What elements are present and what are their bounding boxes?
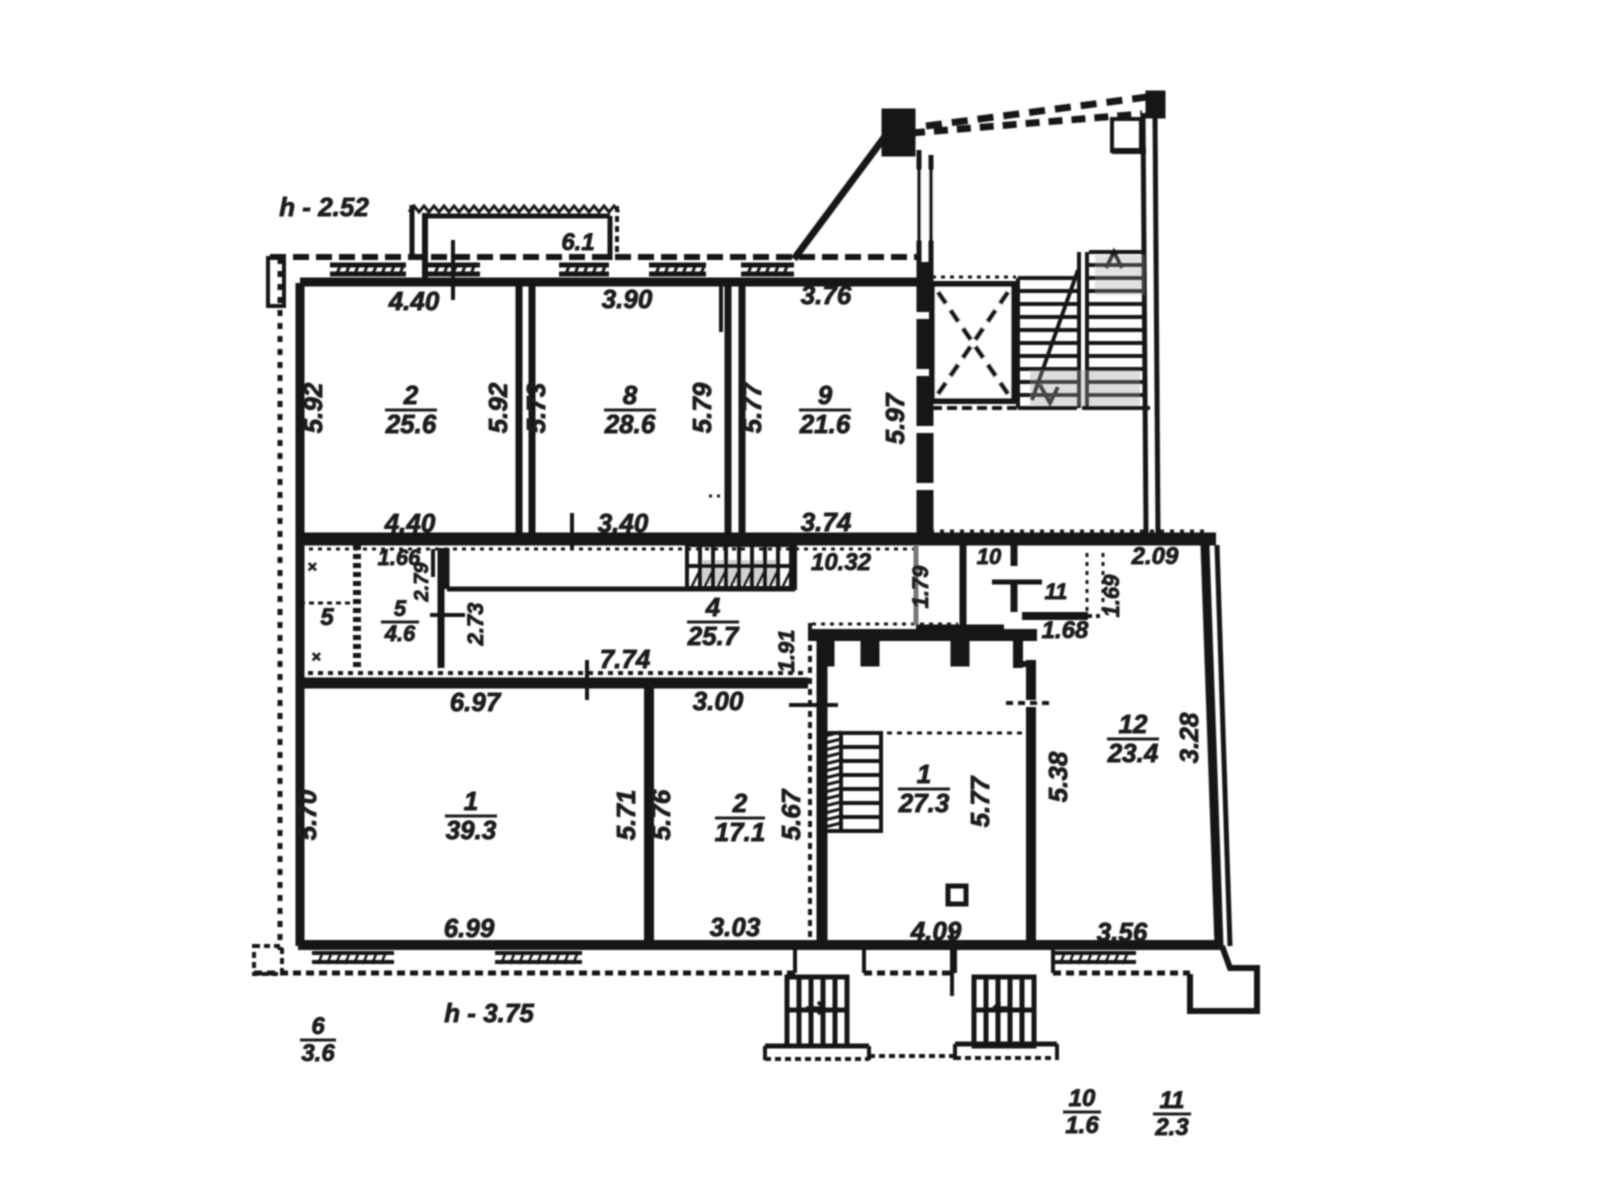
svg-text:5.97: 5.97	[880, 392, 910, 444]
svg-text:23.4: 23.4	[1107, 738, 1159, 768]
svg-text:5.73: 5.73	[521, 382, 551, 433]
svg-text:5.77: 5.77	[737, 381, 767, 433]
svg-text:6.97: 6.97	[450, 687, 502, 717]
svg-text:5.71: 5.71	[611, 790, 641, 841]
svg-text:1.79: 1.79	[908, 565, 933, 609]
svg-text:6.99: 6.99	[444, 913, 495, 943]
svg-text:h - 3.75: h - 3.75	[444, 998, 534, 1028]
svg-text:1.6: 1.6	[1065, 1112, 1099, 1139]
svg-text:11: 11	[1160, 1087, 1185, 1114]
svg-text:25.7: 25.7	[687, 621, 740, 651]
svg-text:5.92: 5.92	[483, 382, 513, 433]
svg-text:3.40: 3.40	[598, 508, 649, 538]
svg-text:1.69: 1.69	[1099, 574, 1124, 618]
svg-text:2: 2	[403, 380, 419, 410]
svg-text:27.3: 27.3	[898, 788, 950, 818]
svg-text:3.28: 3.28	[1174, 712, 1204, 763]
svg-text:2.09: 2.09	[1131, 543, 1179, 570]
svg-text:5.92: 5.92	[298, 382, 328, 433]
svg-text:12: 12	[1119, 709, 1148, 739]
svg-text:10: 10	[1069, 1085, 1096, 1112]
svg-text:3.03: 3.03	[710, 912, 761, 942]
svg-text:5.76: 5.76	[646, 789, 676, 840]
svg-text:8: 8	[623, 380, 638, 410]
svg-text:3.90: 3.90	[602, 284, 653, 314]
svg-text:5: 5	[320, 604, 334, 631]
svg-text:2: 2	[732, 788, 748, 818]
svg-text:39.3: 39.3	[446, 815, 497, 845]
svg-text:6.1: 6.1	[561, 229, 594, 256]
svg-text:5.77: 5.77	[965, 775, 995, 827]
svg-text:28.6: 28.6	[604, 409, 656, 439]
svg-text:3.6: 3.6	[301, 1040, 335, 1067]
svg-text:10.32: 10.32	[811, 549, 872, 576]
svg-text:1.68: 1.68	[1042, 617, 1089, 644]
svg-text:4.09: 4.09	[910, 916, 962, 946]
svg-text:10: 10	[977, 544, 1002, 569]
svg-text:h - 2.52: h - 2.52	[279, 192, 369, 222]
svg-text:9: 9	[818, 380, 833, 410]
svg-text:7.74: 7.74	[600, 644, 651, 674]
svg-text:4.6: 4.6	[384, 621, 416, 646]
svg-text:5: 5	[394, 596, 407, 621]
svg-text:3.00: 3.00	[693, 686, 744, 716]
svg-text:21.6: 21.6	[799, 409, 851, 439]
svg-text:2.73: 2.73	[463, 603, 488, 647]
svg-text:1.91: 1.91	[774, 630, 799, 673]
svg-text:4: 4	[705, 592, 721, 622]
svg-text:5.38: 5.38	[1043, 751, 1073, 802]
svg-text:6: 6	[311, 1013, 325, 1040]
svg-text:1: 1	[917, 759, 931, 789]
svg-text:25.6: 25.6	[385, 409, 437, 439]
svg-text:3.76: 3.76	[801, 280, 852, 310]
svg-text:5.70: 5.70	[292, 789, 322, 840]
svg-text:2.3: 2.3	[1154, 1114, 1189, 1141]
svg-text:3.74: 3.74	[801, 507, 852, 537]
svg-text:1: 1	[464, 786, 478, 816]
svg-text:×: ×	[311, 649, 320, 666]
svg-text:3.56: 3.56	[1097, 917, 1148, 947]
svg-text:2.79: 2.79	[411, 562, 433, 603]
svg-text:×: ×	[307, 559, 316, 576]
svg-text:4.40: 4.40	[388, 286, 440, 316]
svg-text:11: 11	[1045, 579, 1068, 604]
svg-text:5.79: 5.79	[687, 382, 717, 433]
svg-text:5.67: 5.67	[776, 788, 806, 840]
svg-text:17.1: 17.1	[715, 817, 766, 847]
svg-text:4.40: 4.40	[384, 508, 436, 538]
